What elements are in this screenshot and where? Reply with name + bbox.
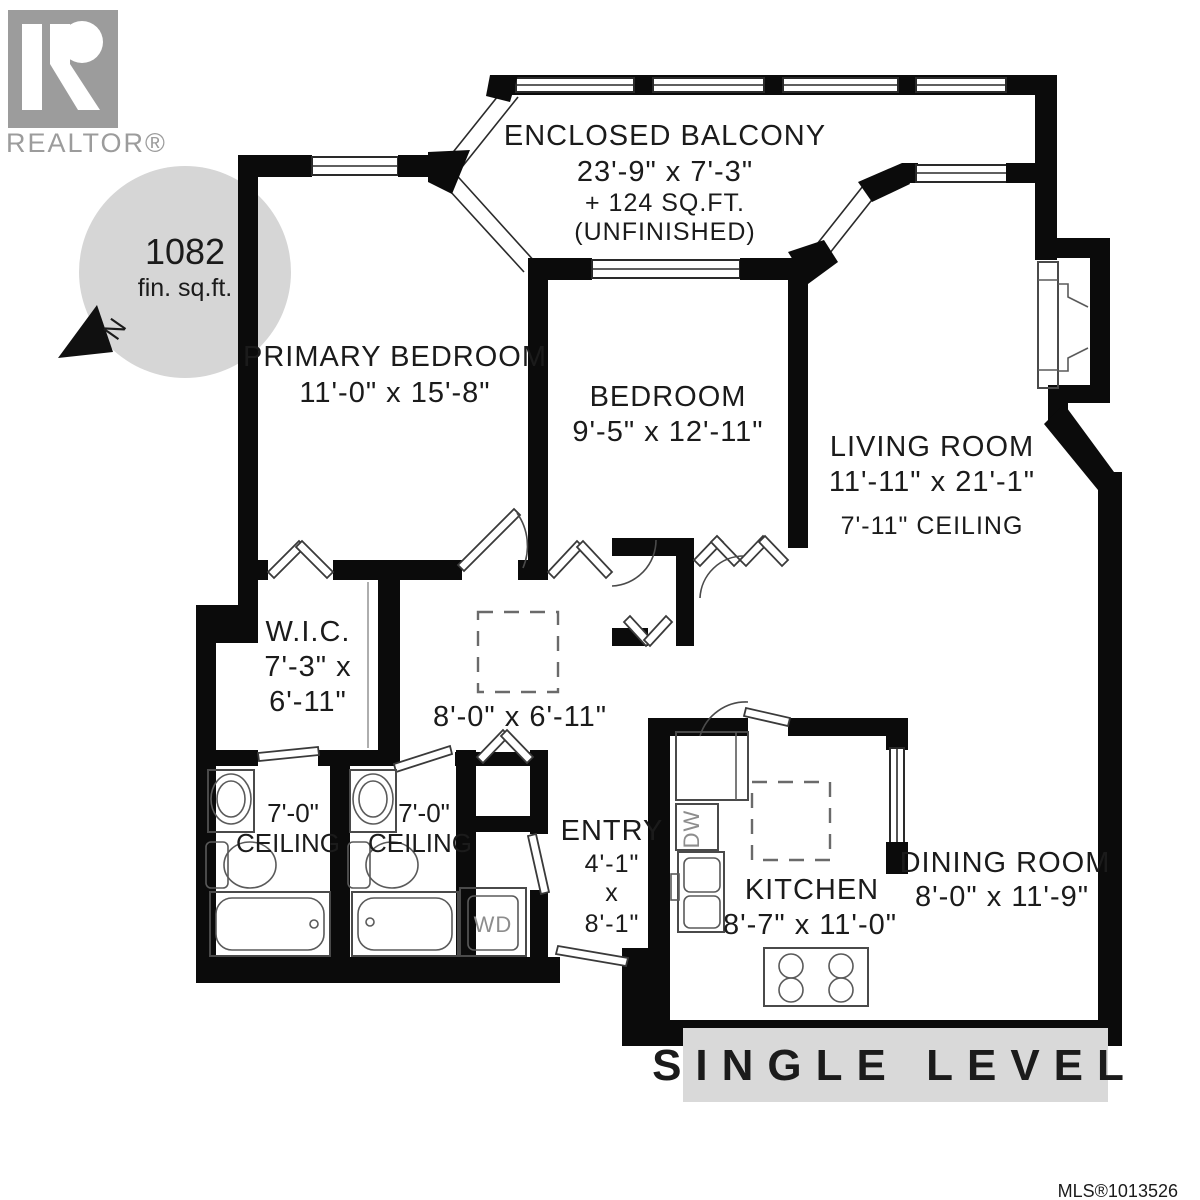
entry-dims-2: x — [605, 879, 619, 907]
area-unit: fin. sq.ft. — [138, 274, 232, 302]
bedroom-dims: 9'-5" x 12'-11" — [572, 416, 763, 448]
floor-plan-canvas: N 1082 fin. sq.ft. REALTOR® — [0, 0, 1200, 1200]
bedroom-name: BEDROOM — [590, 381, 747, 413]
bath2-tub — [352, 892, 458, 956]
bath2-sink — [350, 770, 396, 832]
area-value: 1082 — [145, 231, 225, 272]
balcony-note: (UNFINISHED) — [574, 218, 755, 246]
floor-plan-page: N 1082 fin. sq.ft. REALTOR® — [0, 0, 1200, 1200]
entry-dims-3: 8'-1" — [585, 910, 640, 938]
balcony-dims: 23'-9" x 7'-3" — [577, 156, 753, 188]
dining-dims: 8'-0" x 11'-9" — [915, 881, 1089, 913]
washer-dryer-label: WD — [474, 912, 513, 937]
balcony-name: ENCLOSED BALCONY — [504, 120, 826, 152]
primary-bedroom-dims: 11'-0" x 15'-8" — [299, 377, 490, 409]
bath1-ceiling-2: CEILING — [236, 828, 340, 858]
hall-dashed-area — [478, 612, 558, 692]
kitchen-dims: 8'-7" x 11'-0" — [723, 909, 897, 941]
dining-name: DINING ROOM — [900, 847, 1111, 879]
kitchen-name: KITCHEN — [745, 874, 879, 906]
stove — [764, 948, 868, 1006]
balcony-extra-area: + 124 SQ.FT. — [585, 189, 745, 217]
kitchen-sink — [671, 852, 724, 932]
wic-dims-1: 7'-3" x — [264, 651, 351, 683]
level-banner: SINGLE LEVEL — [652, 1028, 1138, 1102]
entry-dims-1: 4'-1" — [585, 850, 640, 878]
fridge — [676, 732, 748, 800]
bath1-ceiling-1: 7'-0" — [267, 798, 319, 828]
dishwasher-label: DW — [679, 810, 704, 849]
primary-bedroom-name: PRIMARY BEDROOM — [243, 341, 547, 373]
living-room-dims: 11'-11" x 21'-1" — [829, 466, 1035, 498]
fireplace-icon — [1038, 262, 1088, 388]
bath1-tub — [210, 892, 330, 956]
hall-dims: 8'-0" x 6'-11" — [433, 701, 607, 733]
living-room-name: LIVING ROOM — [830, 431, 1034, 463]
dishwasher: DW — [676, 804, 718, 850]
entry-name: ENTRY — [561, 815, 664, 847]
living-room-ceiling: 7'-11" CEILING — [841, 512, 1024, 540]
wic-name: W.I.C. — [266, 616, 351, 648]
level-banner-label: SINGLE LEVEL — [652, 1041, 1138, 1090]
room-labels: ENCLOSED BALCONY 23'-9" x 7'-3" + 124 SQ… — [236, 120, 1110, 941]
bath2-ceiling-2: CEILING — [368, 828, 472, 858]
realtor-logo: REALTOR® — [6, 10, 167, 158]
realtor-logo-label: REALTOR® — [6, 128, 167, 158]
wic-dims-2: 6'-11" — [269, 686, 347, 718]
kitchen-dashed-area — [752, 782, 830, 860]
bath2-ceiling-1: 7'-0" — [398, 798, 450, 828]
mls-number: MLS®1013526 — [1058, 1181, 1178, 1200]
